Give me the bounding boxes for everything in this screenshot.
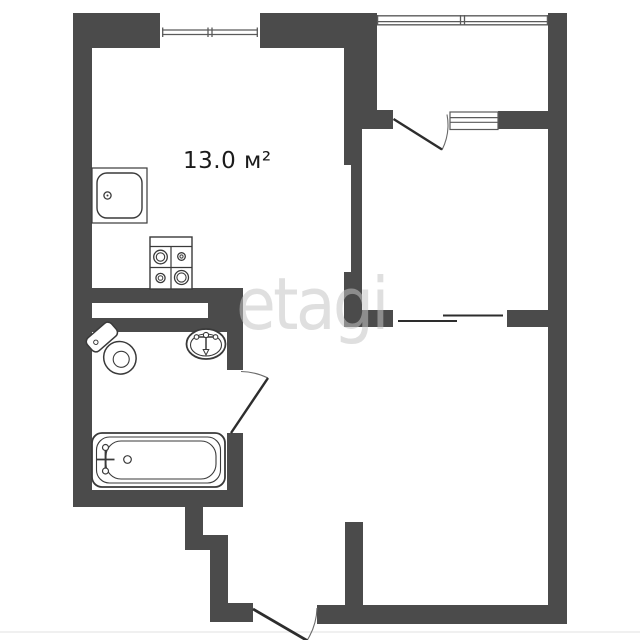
wall-hall-step-v2 [210, 550, 228, 622]
wall-bottom [317, 605, 567, 624]
wall-balcony-right-seg [498, 111, 548, 129]
balcony-window [377, 15, 548, 25]
wall-top-mid [260, 13, 345, 48]
wall-hall-step-foot [228, 603, 253, 622]
wall-corner-column [344, 13, 377, 115]
room-area-label: 13.0 м² [183, 148, 272, 174]
wall-bathroom-bottom [73, 490, 243, 507]
sliding-door [398, 316, 503, 322]
bathtub-icon [92, 433, 225, 487]
wall-hall-room-divider [345, 522, 363, 607]
wall-hall-step-v1 [185, 507, 203, 535]
wall-hall-step-jog [185, 535, 228, 550]
bedroom-window [450, 112, 498, 130]
photo-edge-line [0, 631, 640, 633]
watermark-text: etagi [236, 268, 387, 340]
wall-sliding-right-seg [507, 310, 548, 327]
washbasin-icon [187, 329, 226, 359]
wall-right [548, 13, 567, 624]
wall-shaft-slot [92, 303, 208, 318]
entrance-door-swing [253, 608, 317, 640]
wall-left [73, 13, 92, 507]
balcony-door-swing [394, 115, 448, 151]
kitchen-sink-icon [92, 168, 147, 223]
stove-icon [150, 237, 192, 289]
wall-bedroom-left-notch [344, 165, 351, 272]
bathroom-door-swing [231, 372, 268, 434]
floorplan-canvas: etagi [0, 0, 640, 640]
kitchen-window [162, 28, 258, 38]
